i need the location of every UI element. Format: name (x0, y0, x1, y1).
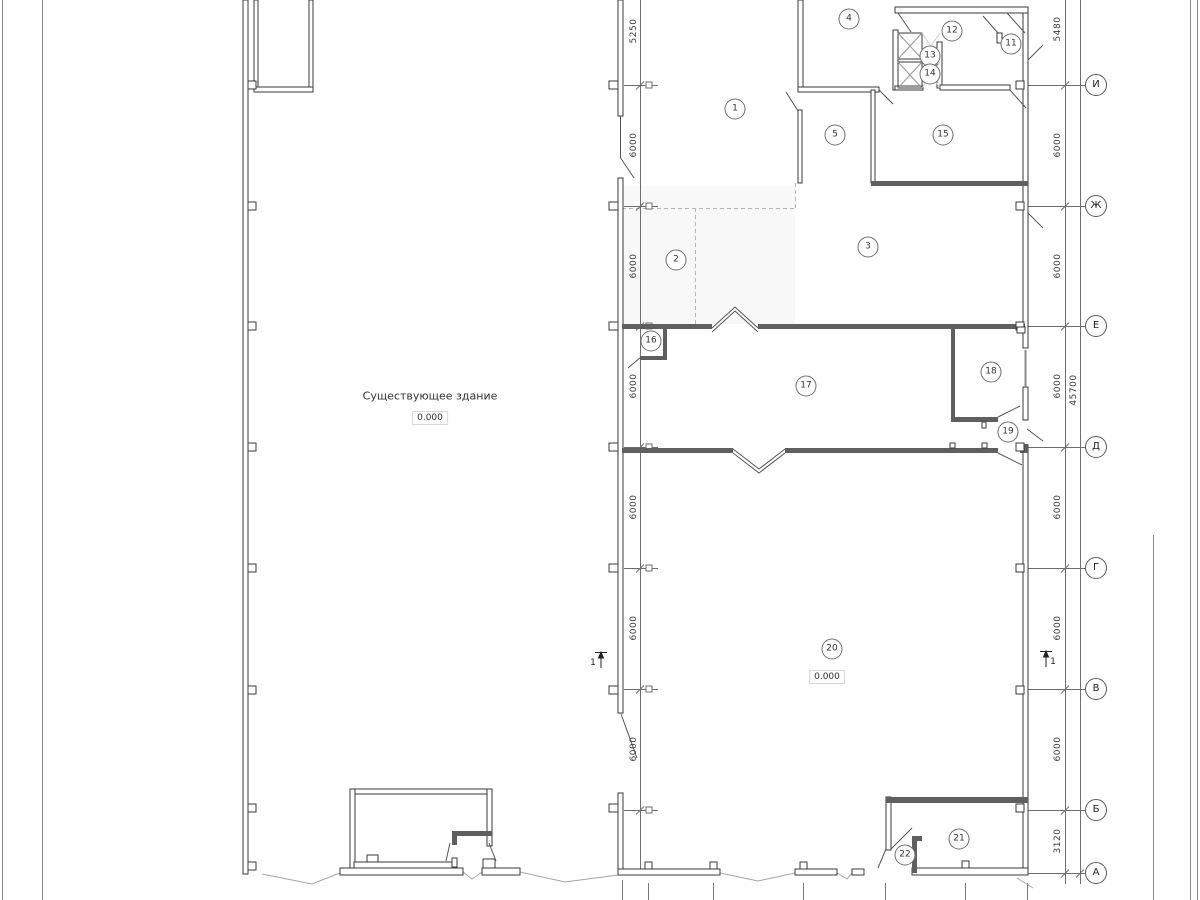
dimension-label: 5250 (629, 19, 639, 44)
dimension-label: 6000 (1053, 254, 1063, 279)
elevation-mark: 0.000 (412, 411, 448, 425)
elevation-mark-room20: 0.000 (809, 670, 845, 684)
floor-plan: 12345111213141516171819202122 ИЖЕДГВБА 5… (0, 0, 1200, 900)
axis-bubble: В (1085, 678, 1107, 700)
section-mark-label-right: 1 (1050, 657, 1056, 667)
room-number-bubble: 18 (981, 362, 1002, 383)
axis-bubble: Б (1085, 799, 1107, 821)
dimension-label: 6000 (1053, 495, 1063, 520)
room-number-bubble: 17 (796, 376, 817, 397)
axis-bubble: Ж (1085, 195, 1107, 217)
existing-building-label: Существующее здание (363, 390, 498, 403)
room-number-bubble: 1 (725, 99, 746, 120)
door-leaves (446, 13, 1043, 868)
dimension-label: 6000 (629, 616, 639, 641)
grid-ticks-bottom (623, 880, 1028, 900)
axis-bubble: Д (1085, 436, 1107, 458)
room-number-bubble: 5 (825, 125, 846, 146)
dimension-label: 6000 (629, 254, 639, 279)
room-number-bubble: 2 (666, 250, 687, 271)
room-number-bubble: 15 (933, 125, 954, 146)
dimension-label: 6000 (1053, 133, 1063, 158)
axis-bubble: Е (1085, 315, 1107, 337)
axis-bubble: А (1085, 862, 1107, 884)
section-mark-label-left: 1 (590, 658, 596, 668)
room-number-bubble: 4 (839, 9, 860, 30)
dimension-label: 6000 (629, 495, 639, 520)
dimension-label: 6000 (1053, 616, 1063, 641)
room-number-bubble: 3 (858, 237, 879, 258)
dimension-label: 6000 (1053, 737, 1063, 762)
overall-dimension-label: 45700 (1069, 374, 1079, 405)
dimension-label: 6000 (1053, 374, 1063, 399)
room-number-bubble: 22 (895, 845, 916, 866)
room-number-bubble: 20 (822, 639, 843, 660)
axis-dimension-lines (624, 0, 1086, 884)
axis-bubble: И (1085, 74, 1107, 96)
dimension-label: 6000 (629, 133, 639, 158)
room-number-bubble: 11 (1001, 34, 1022, 55)
dimension-label: 5480 (1053, 17, 1063, 42)
axis-bubble: Г (1085, 557, 1107, 579)
room-number-bubble: 19 (998, 422, 1019, 443)
room-number-bubble: 14 (920, 64, 941, 85)
room-number-bubble: 21 (949, 829, 970, 850)
dimension-label: 6000 (629, 737, 639, 762)
dimension-label: 6000 (629, 374, 639, 399)
room-number-bubble: 16 (641, 331, 662, 352)
floor-plan-drawing (0, 0, 1200, 900)
dimension-label: 3120 (1053, 829, 1063, 854)
room-number-bubble: 12 (942, 21, 963, 42)
